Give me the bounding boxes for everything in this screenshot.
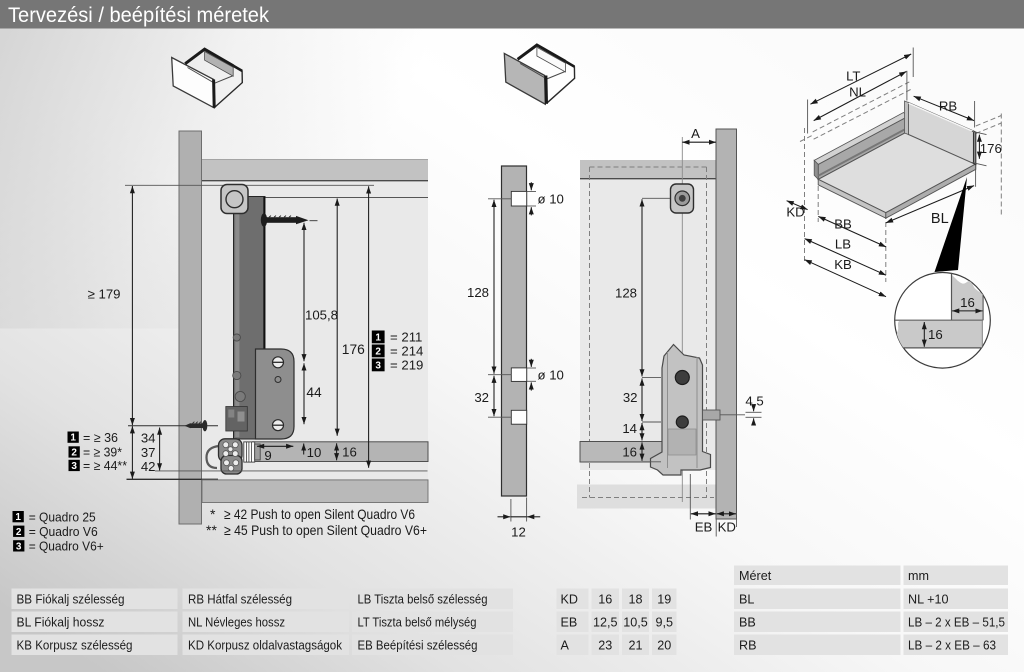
svg-text:Méret: Méret <box>739 569 772 583</box>
svg-text:KD: KD <box>718 520 736 535</box>
svg-text:3: 3 <box>375 361 381 372</box>
svg-text:Tervezési / beépítési méretek: Tervezési / beépítési méretek <box>8 4 269 27</box>
svg-text:EB: EB <box>695 520 713 535</box>
svg-text:4,5: 4,5 <box>745 393 763 408</box>
svg-text:NL Névleges hossz: NL Névleges hossz <box>188 616 285 630</box>
svg-text:mm: mm <box>908 569 929 583</box>
svg-text:KD Korpusz oldalvastagságok: KD Korpusz oldalvastagságok <box>188 639 343 653</box>
svg-text:= ≥ 36: = ≥ 36 <box>83 430 118 445</box>
svg-text:128: 128 <box>467 285 489 300</box>
svg-text:≥ 42 Push to open Silent Quadr: ≥ 42 Push to open Silent Quadro V6 <box>224 506 415 522</box>
svg-text:NL +10: NL +10 <box>908 593 949 607</box>
svg-text:21: 21 <box>628 639 642 653</box>
svg-text:37: 37 <box>141 445 156 460</box>
svg-text:128: 128 <box>615 285 637 300</box>
svg-text:NL: NL <box>849 85 866 100</box>
svg-text:42: 42 <box>141 459 156 474</box>
svg-text:**: ** <box>206 522 217 538</box>
svg-text:≥ 179: ≥ 179 <box>88 287 121 302</box>
svg-text:3: 3 <box>71 461 77 472</box>
svg-text:44: 44 <box>306 385 322 400</box>
svg-text:LT: LT <box>846 69 860 84</box>
svg-text:ø 10: ø 10 <box>538 368 564 383</box>
svg-text:16: 16 <box>928 327 943 342</box>
svg-text:≥ 45 Push to open Silent Quadr: ≥ 45 Push to open Silent Quadro V6+ <box>224 522 427 538</box>
svg-text:2: 2 <box>16 527 22 538</box>
svg-text:BL: BL <box>739 593 754 607</box>
svg-text:= 214: = 214 <box>390 344 423 359</box>
svg-text:BL Fiókalj hossz: BL Fiókalj hossz <box>17 616 105 630</box>
svg-text:LT Tiszta belső mélység: LT Tiszta belső mélység <box>358 616 477 630</box>
svg-text:= ≥ 44**: = ≥ 44** <box>83 458 127 473</box>
svg-text:14: 14 <box>622 421 637 436</box>
svg-text:BB: BB <box>834 216 852 231</box>
svg-text:176: 176 <box>342 342 365 357</box>
svg-text:12,5: 12,5 <box>593 616 618 630</box>
svg-text:9: 9 <box>264 448 271 463</box>
svg-text:9,5: 9,5 <box>655 616 673 630</box>
svg-text:LB Tiszta belső szélesség: LB Tiszta belső szélesség <box>358 593 488 607</box>
svg-text:KD: KD <box>561 593 579 607</box>
svg-text:BB: BB <box>739 616 756 630</box>
svg-text:10: 10 <box>307 445 322 460</box>
svg-text:LB – 2 x EB – 63: LB – 2 x EB – 63 <box>908 639 996 653</box>
svg-text:1: 1 <box>70 433 76 444</box>
svg-text:34: 34 <box>141 431 156 446</box>
svg-text:KB Korpusz szélesség: KB Korpusz szélesség <box>17 639 133 653</box>
svg-text:BL: BL <box>931 211 949 227</box>
svg-text:23: 23 <box>598 639 612 653</box>
svg-text:20: 20 <box>657 639 671 653</box>
svg-text:BB Fiókalj szélesség: BB Fiókalj szélesség <box>17 593 125 607</box>
svg-text:EB: EB <box>561 616 578 630</box>
svg-text:16: 16 <box>960 295 975 310</box>
svg-text:KD: KD <box>786 205 804 220</box>
svg-text:= Quadro 25: = Quadro 25 <box>29 509 96 524</box>
svg-text:RB: RB <box>739 639 757 653</box>
svg-text:*: * <box>210 506 216 522</box>
svg-text:176: 176 <box>980 141 1002 156</box>
svg-text:A: A <box>691 126 700 141</box>
svg-text:18: 18 <box>628 593 642 607</box>
svg-text:= Quadro V6+: = Quadro V6+ <box>29 539 104 554</box>
svg-text:3: 3 <box>16 541 22 552</box>
svg-text:19: 19 <box>657 593 671 607</box>
svg-text:LB: LB <box>835 236 851 251</box>
svg-text:KB: KB <box>834 257 852 272</box>
svg-text:10,5: 10,5 <box>623 616 648 630</box>
svg-text:12: 12 <box>511 525 526 540</box>
svg-text:16: 16 <box>598 593 612 607</box>
svg-text:= 219: = 219 <box>390 358 423 373</box>
svg-text:16: 16 <box>342 445 357 460</box>
svg-text:2: 2 <box>71 448 77 459</box>
svg-text:1: 1 <box>375 333 381 344</box>
svg-text:LB – 2 x EB – 51,5: LB – 2 x EB – 51,5 <box>908 616 1005 630</box>
svg-text:= 211: = 211 <box>390 330 422 345</box>
svg-text:2: 2 <box>375 347 381 358</box>
svg-text:A: A <box>561 639 570 653</box>
svg-text:RB Hátfal szélesség: RB Hátfal szélesség <box>188 593 292 607</box>
svg-text:EB Beépítési szélesség: EB Beépítési szélesség <box>358 639 478 653</box>
svg-text:32: 32 <box>474 390 489 405</box>
svg-text:105,8: 105,8 <box>305 307 338 322</box>
svg-text:RB: RB <box>939 99 958 114</box>
svg-text:1: 1 <box>15 512 21 523</box>
svg-text:= Quadro V6: = Quadro V6 <box>29 524 98 539</box>
svg-text:32: 32 <box>623 390 638 405</box>
svg-text:ø 10: ø 10 <box>538 192 564 207</box>
svg-text:16: 16 <box>622 445 637 460</box>
